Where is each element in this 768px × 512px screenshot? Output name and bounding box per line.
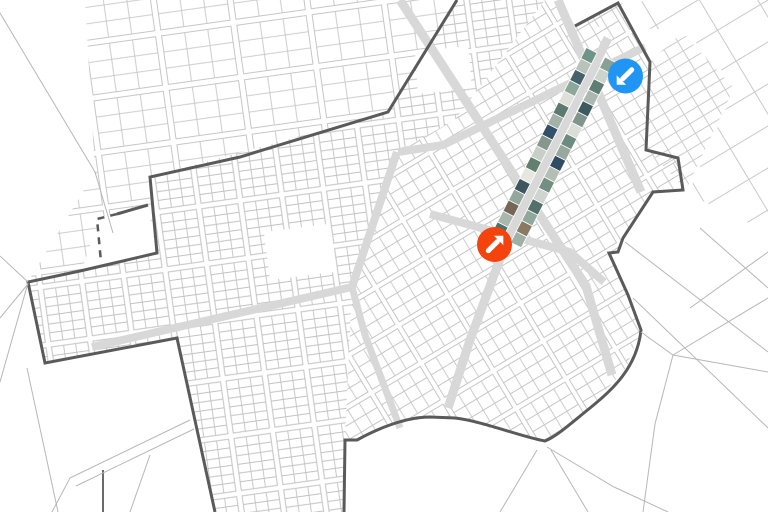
map-marker-center-focus[interactable] (477, 227, 512, 262)
outside-line (0, 284, 28, 318)
outside-line (643, 355, 673, 512)
map-marker-north-entry[interactable] (608, 59, 643, 94)
outside-line (641, 332, 768, 372)
outside-line (0, 256, 28, 282)
outside-line (673, 298, 768, 355)
outside-line (500, 450, 537, 512)
outside-line (551, 450, 588, 512)
outside-line (700, 228, 768, 288)
outside-line (0, 283, 28, 382)
outside-line (70, 420, 190, 478)
map-canvas (0, 0, 768, 512)
outside-line (547, 447, 668, 512)
outside-line (76, 429, 194, 486)
outside-line (27, 368, 58, 512)
outside-line (130, 455, 150, 512)
map-viewport[interactable] (0, 0, 768, 512)
outside-line (633, 298, 768, 428)
open-block-west (264, 224, 334, 280)
outside-line (690, 252, 768, 308)
